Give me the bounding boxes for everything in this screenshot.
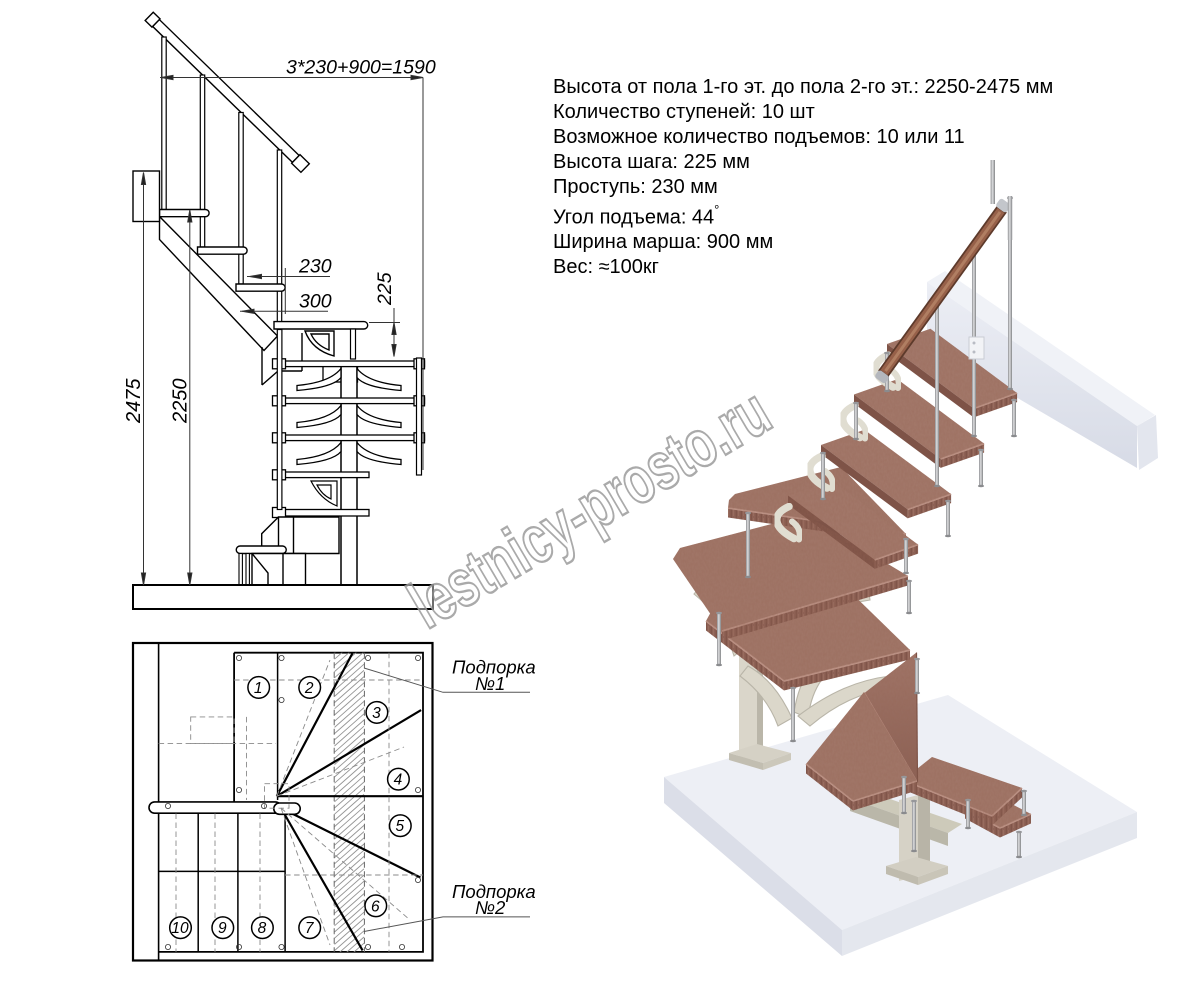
svg-text:1: 1 bbox=[254, 680, 263, 697]
svg-text:№2: №2 bbox=[475, 897, 506, 918]
svg-text:8: 8 bbox=[258, 920, 267, 937]
svg-text:300: 300 bbox=[299, 291, 332, 313]
svg-text:6: 6 bbox=[371, 898, 380, 915]
svg-text:9: 9 bbox=[218, 920, 227, 937]
svg-text:5: 5 bbox=[395, 818, 404, 835]
svg-text:2475: 2475 bbox=[123, 378, 145, 424]
svg-text:225: 225 bbox=[374, 272, 396, 306]
svg-text:7: 7 bbox=[305, 920, 315, 937]
svg-text:4: 4 bbox=[394, 772, 403, 789]
svg-text:10: 10 bbox=[171, 920, 189, 937]
svg-text:3*230+900=1590: 3*230+900=1590 bbox=[286, 57, 436, 79]
svg-text:230: 230 bbox=[298, 256, 332, 278]
svg-text:№1: №1 bbox=[475, 673, 505, 694]
svg-text:3: 3 bbox=[372, 705, 381, 722]
svg-text:2: 2 bbox=[304, 680, 314, 697]
svg-text:2250: 2250 bbox=[170, 379, 192, 425]
